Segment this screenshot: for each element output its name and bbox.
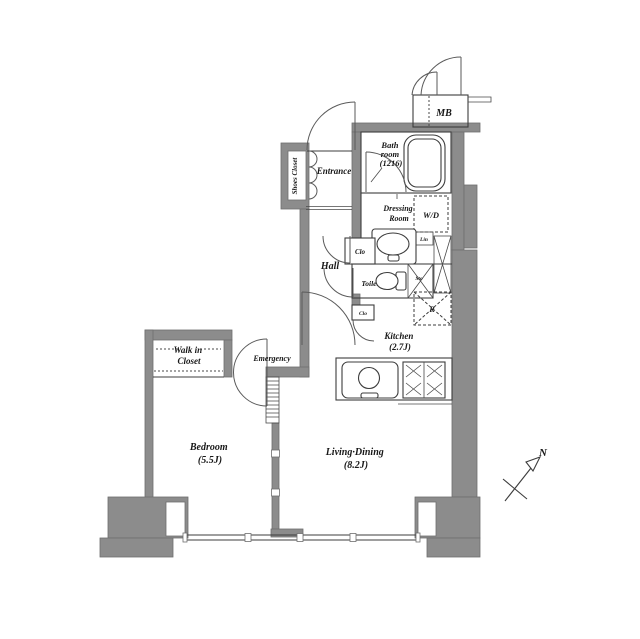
toilet-bowl-icon xyxy=(376,273,398,290)
storage-label: Sto xyxy=(415,276,423,282)
washbasin-icon xyxy=(377,233,409,255)
sink-bowl-icon xyxy=(359,368,380,389)
bathtub-inner xyxy=(408,139,441,187)
bedroom-label: Bedroom (5.5J) xyxy=(189,442,230,466)
window-end-right xyxy=(416,533,420,542)
wall-east-bump xyxy=(464,185,477,248)
dressing-room-label: Dressing Room xyxy=(382,204,414,223)
living-dining-label: Living·Dining (8.2J) xyxy=(325,447,387,471)
front-door xyxy=(307,102,355,150)
mb-door-arc-large-icon xyxy=(421,57,461,95)
hatch-rungs xyxy=(266,381,279,417)
wall-hall-left xyxy=(300,209,309,377)
toilet-door-arc-icon xyxy=(324,268,353,297)
refrigerator-label: R xyxy=(428,305,435,314)
bathroom: Bath room (1216) xyxy=(366,135,445,192)
kitchen-closet-label: Clo xyxy=(359,311,367,317)
hall-living-door-arc-icon xyxy=(302,292,355,345)
mb-door-arc-small-icon xyxy=(412,72,437,95)
hall-closet-label: Clo xyxy=(355,248,366,256)
window-mullion-1 xyxy=(245,534,251,542)
mb-label: MB xyxy=(435,108,452,119)
pillar-br-foot xyxy=(427,538,480,557)
window-mullion-3 xyxy=(350,534,356,542)
front-door-arc-icon xyxy=(307,102,355,150)
wall-emergency-bottom xyxy=(266,367,309,377)
floorplan-page: MB Shoes Closet Bath room (1216) Entranc… xyxy=(0,0,640,639)
wall-wic-top xyxy=(145,330,232,340)
linen-label: Lin xyxy=(419,237,428,243)
window-mullion-2 xyxy=(297,534,303,542)
pillar-br-notch xyxy=(418,502,436,536)
kitchen-label: Kitchen (2.7J) xyxy=(383,331,415,352)
emergency-hatch-panel xyxy=(266,377,279,423)
compass-north-label: N xyxy=(538,447,548,459)
entrance-label: Entrance xyxy=(316,166,352,176)
hall-label: Hall xyxy=(320,261,340,272)
emergency-door-arc-icon xyxy=(234,339,268,406)
partition-pocket-1 xyxy=(272,450,280,457)
hatch-frame xyxy=(266,377,279,423)
walk-in-closet: Walk in Closet xyxy=(154,345,223,371)
south-window xyxy=(183,533,420,542)
compass-crossbar xyxy=(503,479,527,499)
sink-tray-icon xyxy=(361,393,378,398)
walk-in-closet-label: Walk in Closet xyxy=(174,345,205,366)
toilet-room: Toilet Sto xyxy=(324,264,433,298)
kitchen-closet-door-arc-icon xyxy=(353,320,374,341)
kitchen: R Clo Kitchen (2.7J) xyxy=(336,292,452,400)
wall-wic-right xyxy=(224,340,232,377)
compass-arrowhead-icon xyxy=(526,457,540,471)
compass: N xyxy=(503,447,548,501)
wall-hall-right-upper xyxy=(352,132,361,238)
washer-dryer-label: W/D xyxy=(423,210,439,220)
mb-side-lines xyxy=(468,97,491,102)
wall-east-upper xyxy=(452,132,464,250)
basin-faucet-icon xyxy=(388,255,399,261)
hall-living-door xyxy=(302,292,355,345)
pillar-bl-notch xyxy=(166,502,185,536)
wall-partition xyxy=(272,423,279,529)
meter-box: MB xyxy=(412,57,491,127)
window-end-left xyxy=(183,533,187,542)
wall-east-column xyxy=(452,250,477,497)
partition-pocket-2 xyxy=(272,489,280,496)
shoes-closet-label: Shoes Closet xyxy=(291,157,299,195)
bathroom-label: Bath room (1216) xyxy=(380,140,403,168)
pillar-bl-foot xyxy=(100,538,173,557)
floorplan-drawing: MB Shoes Closet Bath room (1216) Entranc… xyxy=(0,0,640,639)
wall-west xyxy=(145,330,153,502)
bathroom-label-leader xyxy=(371,168,382,182)
emergency-label: Emergency xyxy=(252,354,291,363)
